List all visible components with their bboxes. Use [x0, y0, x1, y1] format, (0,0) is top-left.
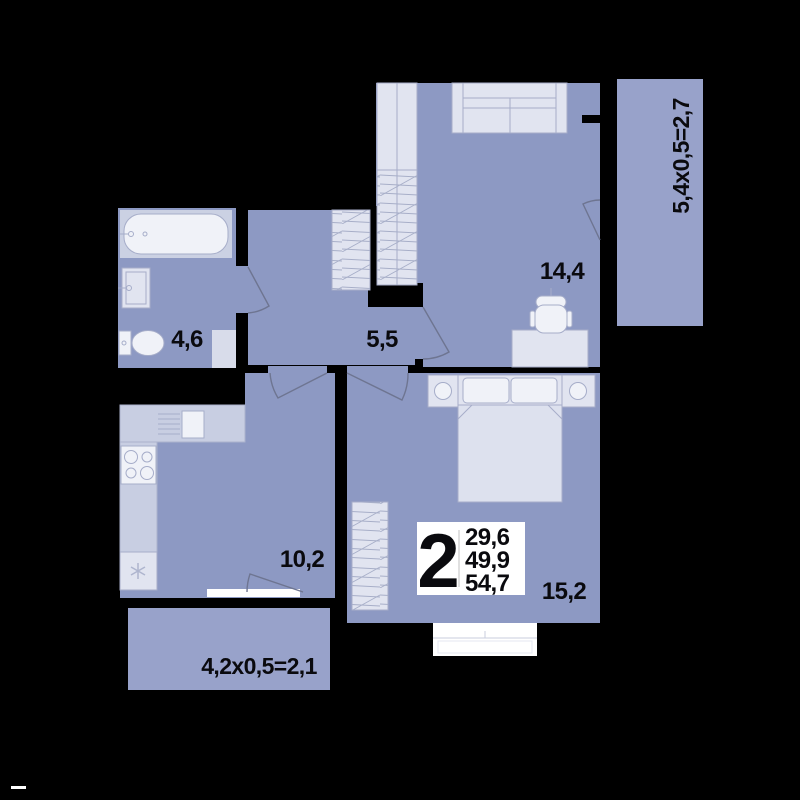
wall-pier [582, 115, 600, 123]
wall-corner [368, 283, 423, 307]
bedroom-area-label: 15,2 [542, 578, 587, 605]
kitchen-area-label: 10,2 [280, 546, 325, 573]
nightstand-left [428, 375, 458, 407]
loggia-right-label: 5,4x0,5=2,7 [668, 98, 694, 214]
sink [118, 268, 150, 308]
bed [458, 375, 562, 502]
washing-machine [212, 330, 236, 368]
wardrobe-hallway [332, 210, 370, 290]
window-bedroom [433, 623, 537, 656]
opening-bathroom [236, 266, 248, 313]
info-badge: 2 29,6 49,9 54,7 [417, 519, 525, 604]
wardrobe-bedroom [352, 502, 388, 610]
hallway-area-label: 5,5 [366, 326, 398, 353]
bathtub [120, 210, 232, 258]
sofa [452, 83, 567, 133]
opening-kitchen [268, 366, 327, 374]
nightstand-right [562, 375, 595, 407]
loggia-bottom-label: 4,2x0,5=2,1 [201, 653, 317, 679]
window-kitchen [207, 589, 300, 597]
bathroom-area-label: 4,6 [171, 326, 203, 353]
wall-wardrobe-divider [370, 206, 377, 285]
fridge [120, 552, 157, 590]
stove [121, 446, 156, 484]
corner-mark [11, 786, 26, 789]
toilet [119, 331, 164, 356]
floor-plan-svg: 2 29,6 49,9 54,7 4,6 5,5 14,4 10,2 15,2 … [0, 0, 800, 800]
opening-bedroom [347, 366, 408, 374]
opening-living [415, 307, 423, 359]
living-area-label: 14,4 [540, 258, 586, 285]
area-line-3: 54,7 [465, 570, 510, 597]
wardrobe-living [377, 83, 417, 285]
desk [512, 330, 588, 367]
floor-plan-canvas: 2 29,6 49,9 54,7 4,6 5,5 14,4 10,2 15,2 … [0, 0, 800, 800]
rooms-count: 2 [417, 519, 458, 604]
